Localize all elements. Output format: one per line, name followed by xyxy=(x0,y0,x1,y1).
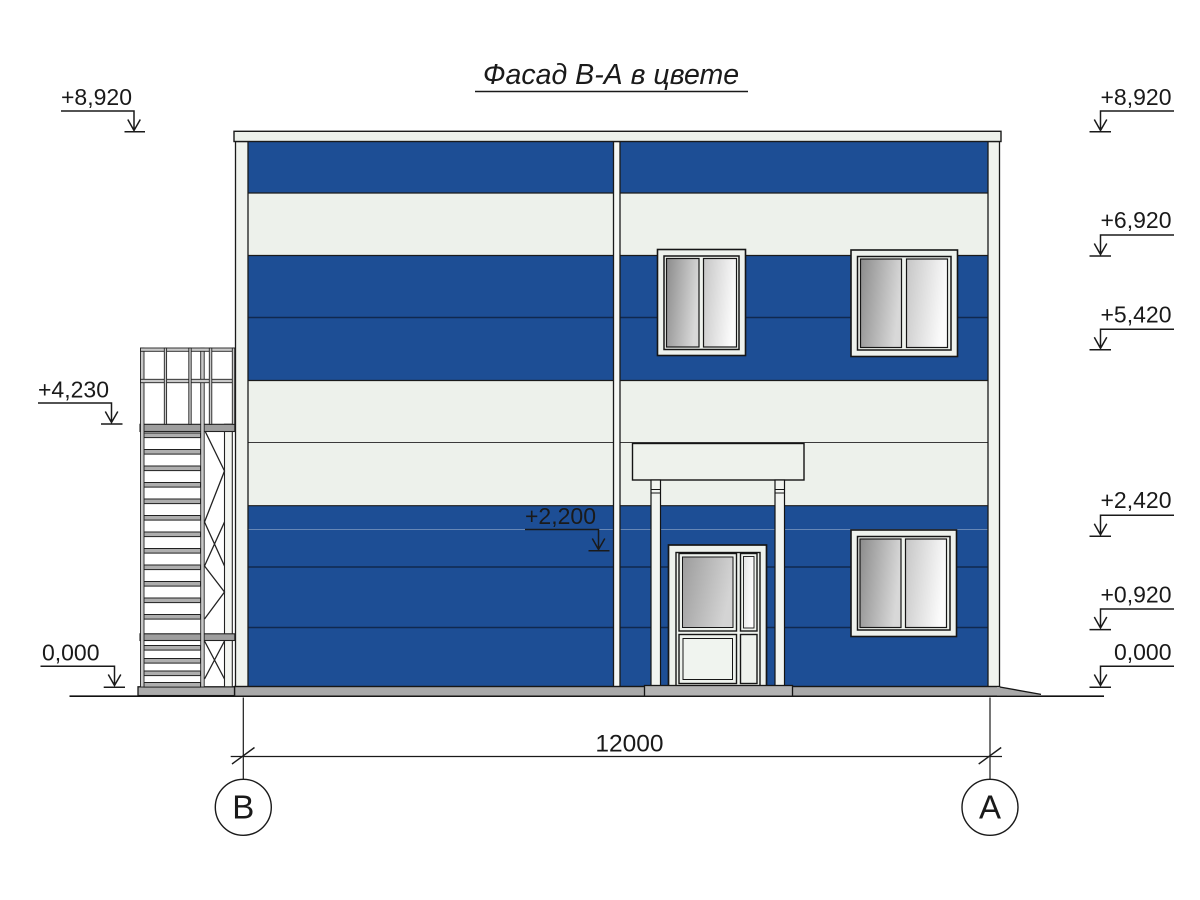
svg-text:+2,200: +2,200 xyxy=(525,503,596,529)
svg-text:12000: 12000 xyxy=(595,731,663,758)
svg-text:0,000: 0,000 xyxy=(42,640,100,666)
svg-text:0,000: 0,000 xyxy=(1114,639,1172,665)
svg-text:Фасад В-А в цвете: Фасад В-А в цвете xyxy=(483,59,739,91)
svg-text:+5,420: +5,420 xyxy=(1101,302,1172,328)
svg-text:+4,230: +4,230 xyxy=(38,377,109,403)
svg-text:+6,920: +6,920 xyxy=(1101,207,1172,233)
svg-text:В: В xyxy=(232,789,254,826)
svg-text:+0,920: +0,920 xyxy=(1101,582,1172,608)
svg-text:+8,920: +8,920 xyxy=(1101,84,1172,110)
svg-text:+2,420: +2,420 xyxy=(1101,487,1172,513)
svg-text:+8,920: +8,920 xyxy=(61,84,132,110)
svg-text:А: А xyxy=(979,789,1001,826)
